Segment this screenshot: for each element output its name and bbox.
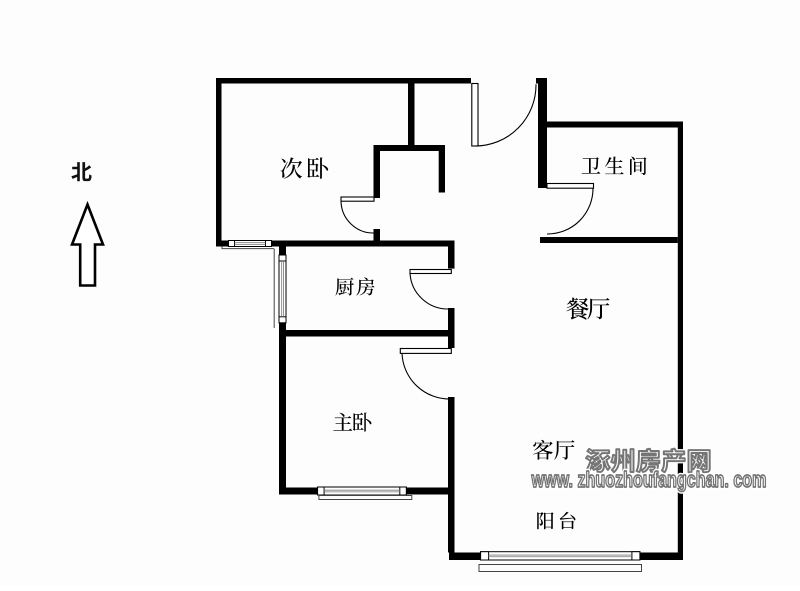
svg-text:www. zhuozhoufangchan. com: www. zhuozhoufangchan. com	[531, 467, 767, 492]
